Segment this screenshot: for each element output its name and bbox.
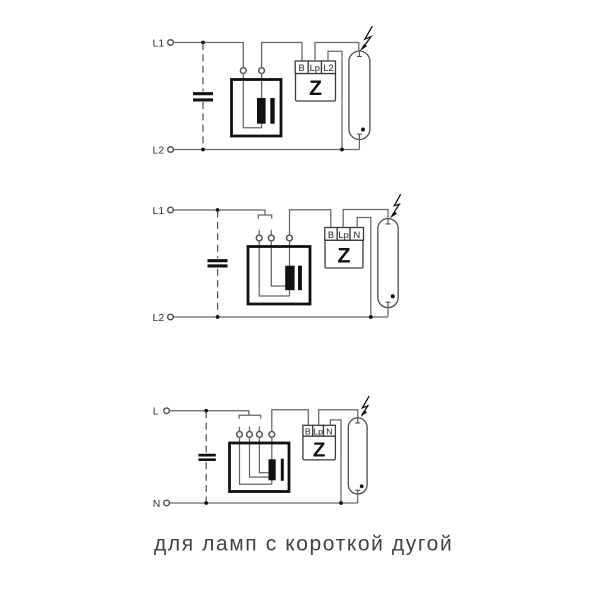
svg-text:N: N [353, 230, 360, 240]
svg-text:B: B [328, 230, 334, 240]
svg-text:Lp: Lp [338, 230, 348, 240]
svg-text:L2: L2 [153, 312, 165, 324]
svg-text:Lp: Lp [313, 427, 323, 437]
svg-text:L1: L1 [153, 38, 165, 50]
svg-text:B: B [305, 427, 311, 437]
svg-text:L2: L2 [323, 63, 333, 73]
svg-text:N: N [153, 498, 161, 510]
svg-text:N: N [326, 427, 332, 437]
svg-text:Z: Z [309, 77, 322, 100]
svg-text:L: L [153, 406, 159, 418]
svg-text:Z: Z [313, 439, 326, 462]
svg-text:B: B [298, 63, 304, 73]
svg-text:L1: L1 [153, 205, 165, 217]
svg-text:L2: L2 [153, 145, 165, 157]
svg-text:Lp: Lp [310, 63, 320, 73]
svg-text:для ламп с короткой дугой: для ламп с короткой дугой [154, 533, 453, 556]
svg-text:Z: Z [337, 244, 350, 268]
